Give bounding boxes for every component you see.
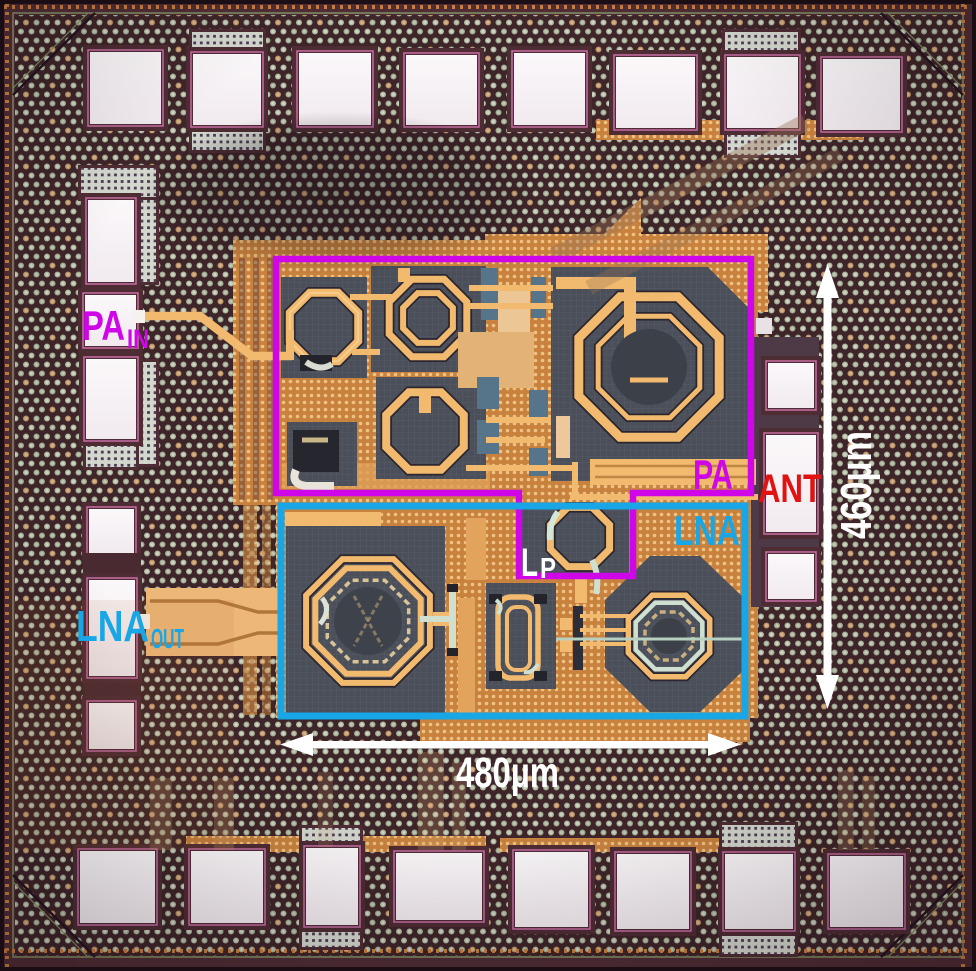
svg-text:460µm: 460µm — [832, 431, 881, 539]
svg-text:L: L — [521, 541, 538, 585]
svg-text:PA: PA — [82, 302, 125, 349]
svg-text:ANT: ANT — [758, 467, 822, 511]
svg-text:LNA: LNA — [76, 602, 149, 651]
svg-text:LNA: LNA — [674, 507, 740, 554]
svg-text:IN: IN — [127, 324, 149, 354]
svg-text:OUT: OUT — [151, 623, 184, 654]
svg-text:480µm: 480µm — [456, 749, 559, 797]
svg-text:PA: PA — [693, 451, 733, 498]
svg-text:P: P — [540, 553, 556, 585]
